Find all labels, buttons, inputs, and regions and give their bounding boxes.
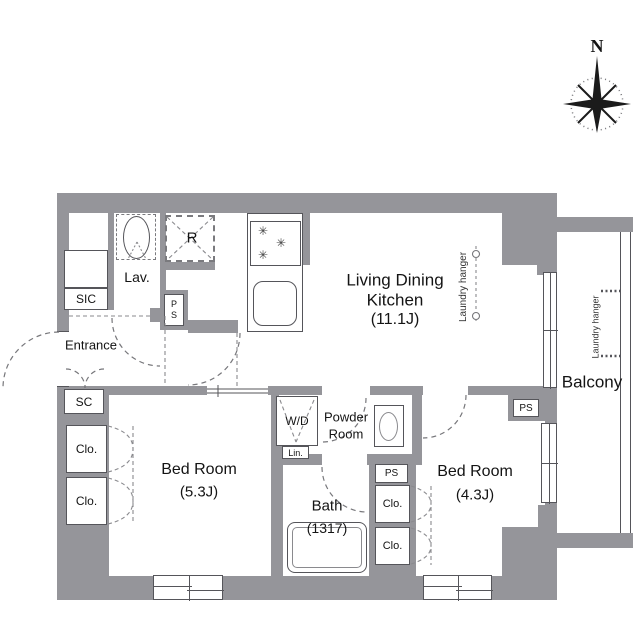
- wall-segment: [538, 505, 557, 529]
- wall-segment: [188, 320, 238, 333]
- laundry-hanger-hook: [473, 313, 480, 320]
- closet-label: Clo.: [76, 494, 97, 508]
- closet-box: Clo.: [66, 477, 107, 525]
- window: [153, 575, 223, 600]
- door-swing-arc: [188, 333, 240, 385]
- toilet-icon: [123, 216, 150, 259]
- closet-folding-door: [108, 478, 133, 524]
- compass-rose: [563, 56, 631, 133]
- wall-segment: [57, 193, 557, 213]
- closet-box: Clo.: [66, 425, 107, 473]
- washer-dryer-label: W/D: [285, 414, 308, 428]
- compass-north-label: N: [591, 37, 604, 55]
- wall-segment: [412, 387, 422, 465]
- laundry-hanger-dashes: [601, 291, 622, 356]
- bedroom-main-size: (5.3J): [180, 485, 218, 500]
- floor-plan: SIC SC Clo. Clo. Clo. Clo. PS PS PS W/D …: [0, 0, 639, 640]
- wall-segment: [502, 193, 557, 265]
- shoe-in-closet-label: SIC: [76, 292, 96, 306]
- shoe-in-closet-box: SIC: [64, 288, 108, 310]
- compass-east-needle: [599, 99, 631, 109]
- pipe-space-box: PS: [513, 399, 539, 417]
- balcony-bottom-wall: [557, 533, 633, 548]
- wall-segment: [468, 386, 545, 395]
- ldk-name-line2: Kitchen: [367, 292, 424, 309]
- laundry-hanger-hook: [473, 251, 480, 258]
- laundry-hanger-label: Laundry hanger: [592, 295, 601, 358]
- closet-label: Clo.: [76, 442, 97, 456]
- powder-room-name-line2: Room: [329, 428, 364, 441]
- bath-name: Bath: [312, 499, 343, 514]
- ldk-size-label: (11.1J): [371, 312, 420, 328]
- stove-burner-icon: ✳: [276, 237, 286, 249]
- stove-burner-icon: ✳: [258, 225, 268, 237]
- wall-segment: [271, 460, 283, 576]
- door-swing-arc: [3, 332, 59, 388]
- door-swing-arc: [112, 318, 160, 366]
- lav-label: Lav.: [124, 270, 149, 284]
- pipe-space-box: PS: [375, 464, 408, 483]
- window: [541, 423, 557, 503]
- powder-room-name-line1: Powder: [324, 411, 368, 424]
- balcony-top-wall: [557, 217, 633, 232]
- door-swing-arc: [423, 395, 466, 438]
- washer-dryer-box: W/D: [276, 396, 318, 446]
- sliding-door: [207, 385, 268, 397]
- wall-segment: [502, 527, 557, 600]
- pipe-space-box: PS: [164, 294, 184, 326]
- bedroom-second-size: (4.3J): [456, 488, 494, 503]
- closet-box: Clo.: [375, 527, 410, 565]
- bath-size: (1317): [307, 521, 347, 535]
- kitchen-sink: [253, 281, 297, 326]
- linen-label: Lin.: [288, 448, 303, 458]
- window: [423, 575, 492, 600]
- stove-burner-icon: ✳: [258, 249, 268, 261]
- balcony-label: Balcony: [562, 374, 622, 391]
- compass-north-needle: [592, 56, 602, 114]
- bedroom-second-name: Bed Room: [437, 464, 513, 480]
- bedroom-main-name: Bed Room: [161, 462, 237, 478]
- compass-south-needle: [592, 106, 602, 133]
- closet-label: Clo.: [383, 540, 403, 552]
- compass-diagonals: [578, 85, 616, 123]
- compass-circle: [571, 78, 623, 130]
- compass-west-needle: [563, 99, 595, 109]
- vanity-sink-icon: [379, 412, 398, 441]
- pipe-space-label: PS: [169, 299, 179, 321]
- pipe-space-label: PS: [519, 403, 532, 414]
- shoe-in-closet-counter: [64, 250, 108, 288]
- window: [543, 272, 557, 388]
- closet-label: Clo.: [383, 498, 403, 510]
- closet-box: Clo.: [375, 485, 410, 523]
- entrance-label: Entrance: [65, 339, 117, 352]
- closet-folding-door: [108, 426, 133, 472]
- linen-box: Lin.: [282, 446, 309, 459]
- laundry-hanger-label: Laundry hanger: [459, 252, 469, 322]
- refrigerator-label: R: [187, 231, 198, 246]
- storage-closet-box: SC: [64, 389, 104, 414]
- ldk-name-line1: Living Dining: [346, 272, 443, 289]
- wall-segment: [160, 262, 215, 270]
- pipe-space-label: PS: [385, 468, 398, 479]
- wall-segment: [108, 213, 114, 310]
- storage-closet-label: SC: [76, 395, 93, 409]
